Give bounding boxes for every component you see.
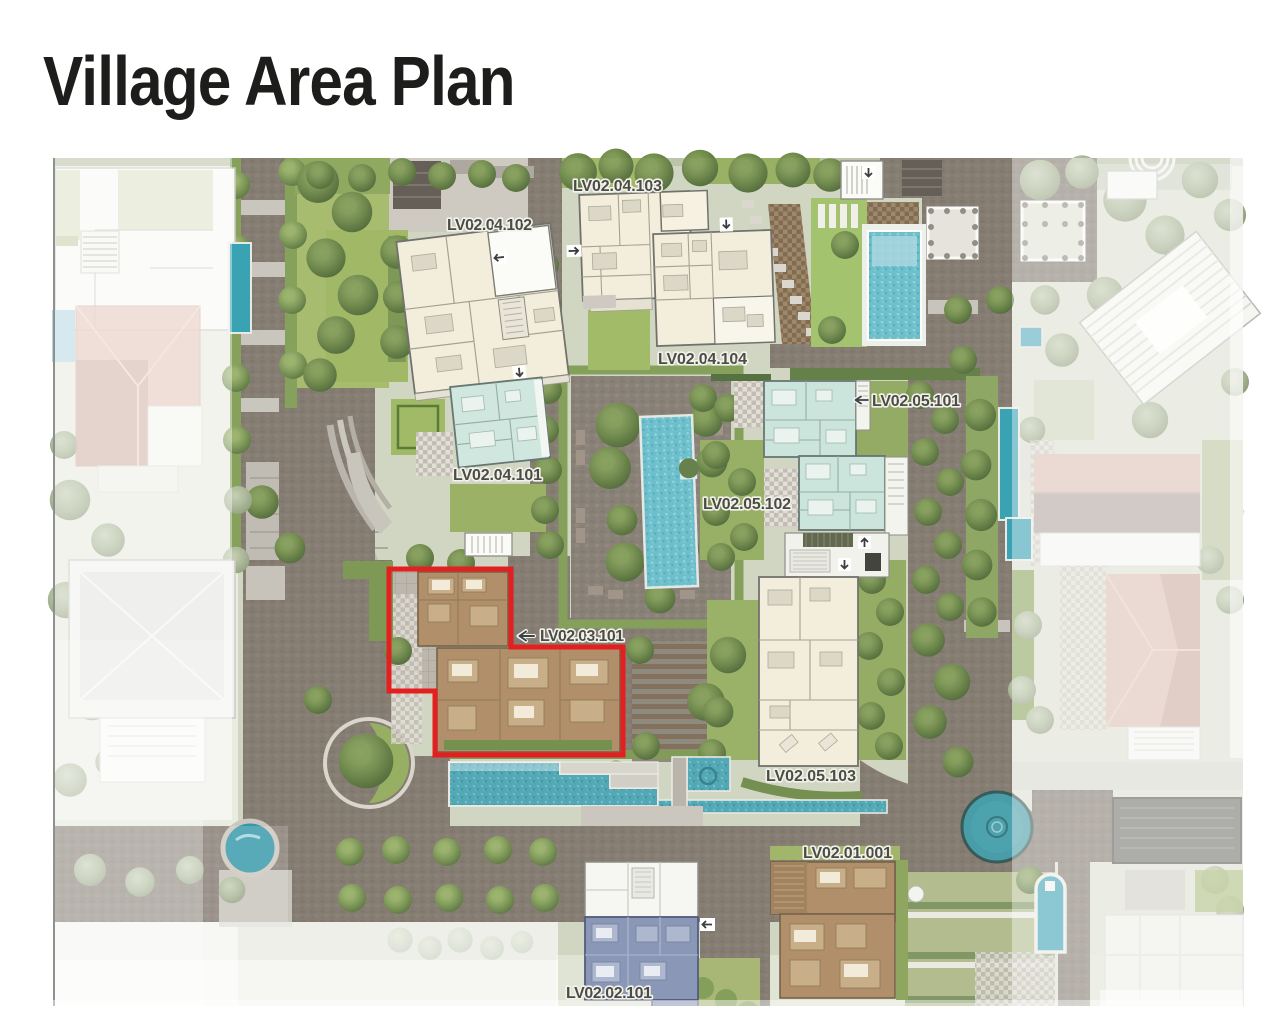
svg-text:LV02.04.103: LV02.04.103 xyxy=(573,178,662,195)
svg-text:LV02.03.101: LV02.03.101 xyxy=(540,628,624,645)
svg-text:LV02.05.102: LV02.05.102 xyxy=(703,496,791,513)
svg-text:LV02.01.001: LV02.01.001 xyxy=(803,845,892,862)
svg-text:LV02.04.102: LV02.04.102 xyxy=(447,217,532,234)
svg-text:LV02.05.103: LV02.05.103 xyxy=(766,768,856,785)
svg-text:LV02.05.101: LV02.05.101 xyxy=(872,393,960,410)
svg-text:LV02.02.101: LV02.02.101 xyxy=(566,985,652,1002)
svg-text:LV02.04.101: LV02.04.101 xyxy=(453,467,542,484)
svg-text:LV02.04.104: LV02.04.104 xyxy=(658,351,747,368)
